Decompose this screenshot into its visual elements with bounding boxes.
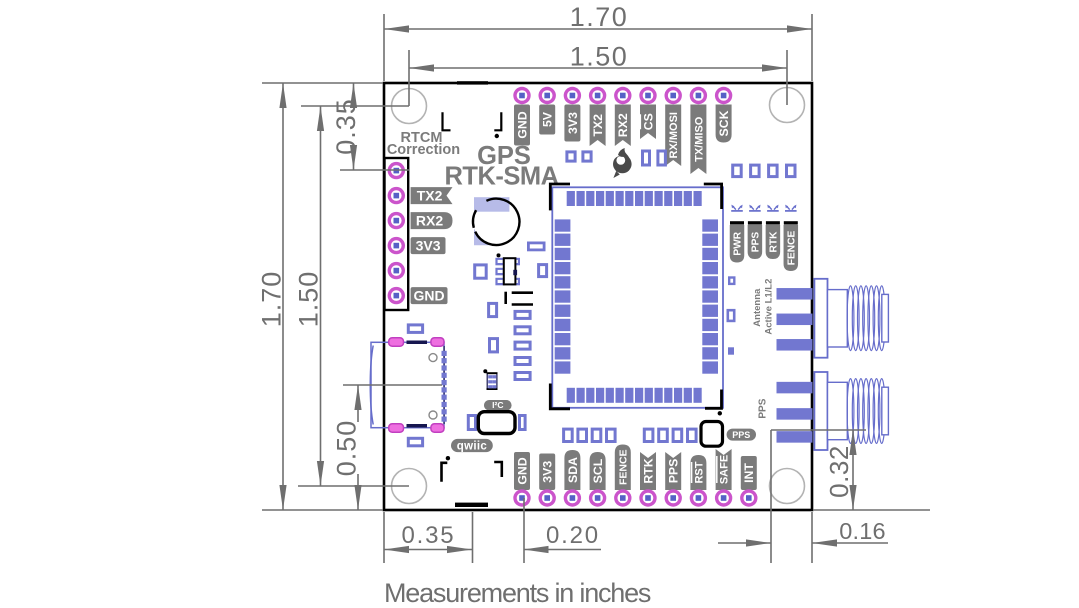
- svg-text:1.70: 1.70: [570, 2, 629, 32]
- svg-text:RX2: RX2: [616, 113, 630, 137]
- svg-text:I²C: I²C: [492, 400, 503, 410]
- svg-text:TX/MISO: TX/MISO: [693, 116, 705, 162]
- svg-text:GND: GND: [515, 457, 529, 484]
- svg-text:RX/MOSI: RX/MOSI: [668, 112, 680, 158]
- svg-text:5V: 5V: [541, 111, 555, 127]
- svg-text:0.50: 0.50: [332, 420, 362, 477]
- svg-text:CS: CS: [641, 113, 655, 130]
- svg-text:qwiic: qwiic: [457, 441, 488, 453]
- svg-text:PPS: PPS: [667, 459, 681, 484]
- svg-text:PPS: PPS: [758, 398, 769, 418]
- svg-text:Active L1/L2: Active L1/L2: [763, 279, 774, 335]
- svg-text:SAFE: SAFE: [719, 455, 731, 484]
- svg-text:TX2: TX2: [417, 188, 443, 204]
- svg-text:3V3: 3V3: [416, 238, 441, 254]
- svg-text:1.50: 1.50: [294, 271, 324, 328]
- svg-text:FENCE: FENCE: [618, 449, 630, 485]
- svg-text:GND: GND: [413, 288, 444, 304]
- svg-text:Antenna: Antenna: [752, 288, 763, 327]
- svg-text:RX2: RX2: [416, 213, 443, 229]
- svg-text:1.70: 1.70: [257, 271, 287, 328]
- svg-text:Measurements in inches: Measurements in inches: [384, 578, 651, 608]
- svg-text:1.50: 1.50: [570, 42, 629, 72]
- svg-text:RST: RST: [693, 461, 705, 483]
- svg-text:SCK: SCK: [717, 110, 731, 136]
- svg-text:GND: GND: [515, 111, 529, 138]
- svg-text:0.16: 0.16: [839, 518, 886, 544]
- svg-text:FENCE: FENCE: [787, 231, 798, 266]
- svg-text:RTK: RTK: [769, 231, 780, 253]
- svg-text:3V3: 3V3: [541, 461, 555, 483]
- svg-text:INT: INT: [742, 463, 756, 483]
- svg-text:TX2: TX2: [591, 114, 605, 137]
- svg-text:0.20: 0.20: [546, 522, 600, 549]
- svg-text:0.32: 0.32: [824, 445, 854, 498]
- svg-text:SCL: SCL: [591, 458, 605, 483]
- svg-text:SDA: SDA: [566, 457, 580, 483]
- svg-text:RTK-SMA: RTK-SMA: [444, 163, 558, 191]
- svg-text:PPS: PPS: [732, 430, 750, 440]
- svg-text:PWR: PWR: [733, 231, 744, 255]
- svg-text:3V3: 3V3: [566, 112, 580, 134]
- svg-text:RTK: RTK: [641, 458, 655, 483]
- svg-text:0.35: 0.35: [331, 98, 361, 155]
- svg-text:Correction: Correction: [387, 142, 460, 158]
- svg-text:PPS: PPS: [751, 232, 762, 253]
- svg-text:0.35: 0.35: [402, 522, 456, 549]
